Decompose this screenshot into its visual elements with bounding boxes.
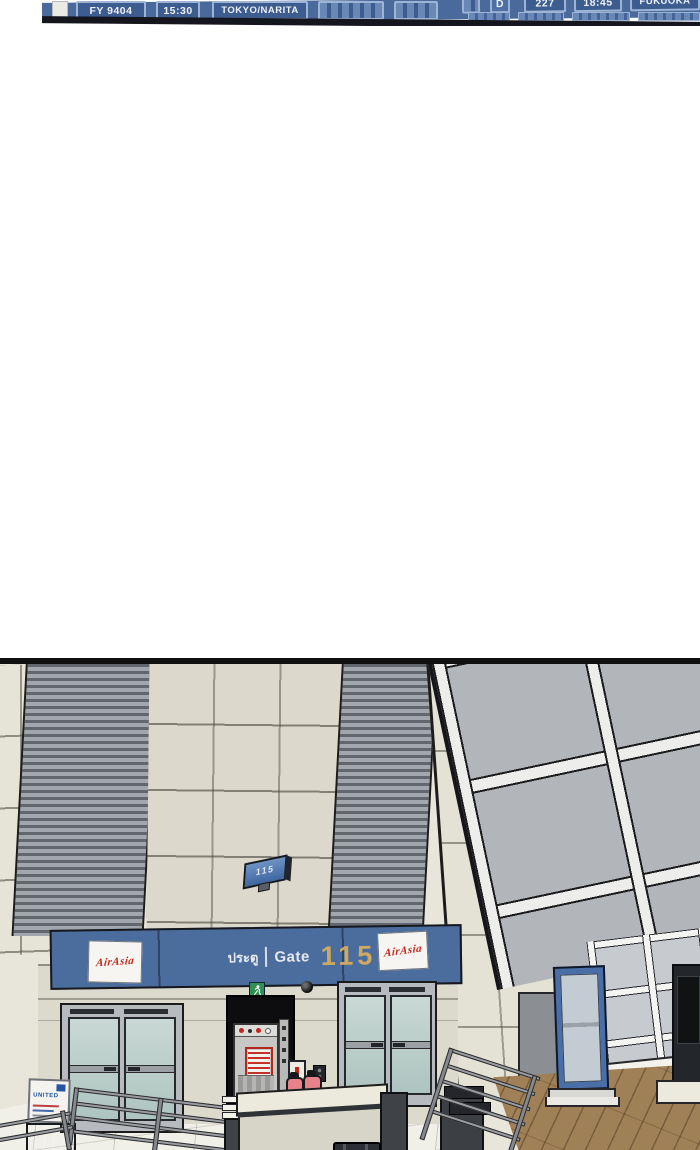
door-closer — [345, 987, 381, 992]
airasia-logo: AirAsia — [384, 942, 422, 959]
gate-scene-panel: 115 AirAsia ประตู Gate 115 AirAsia — [0, 658, 700, 1150]
door-glass-pane — [390, 995, 432, 1095]
monitor-screen — [677, 976, 700, 1044]
ribbed-panel-left — [12, 660, 158, 936]
door-handle — [128, 1067, 140, 1071]
railing-bar — [428, 1108, 521, 1141]
counter-pedestal-right — [380, 1092, 408, 1150]
door-handle — [371, 1043, 383, 1047]
indicator-light-icon — [265, 1028, 271, 1034]
flight-board-strip: FY 9404 15:30 TOKYO/NARITA D 227 18:45 F… — [0, 0, 700, 26]
security-camera-icon — [301, 981, 313, 993]
board-cell-empty — [572, 12, 630, 21]
gate-label-thai: ประตู — [228, 946, 259, 967]
board-cell-empty — [318, 1, 384, 20]
indicator-light-icon — [256, 1028, 261, 1033]
united-sign-brand: UNITED — [33, 1092, 59, 1099]
railing-bar — [0, 1125, 73, 1143]
comic-page: FY 9404 15:30 TOKYO/NARITA D 227 18:45 F… — [0, 0, 700, 1150]
door-closer — [70, 1009, 114, 1014]
board-cell-flight: 227 — [524, 0, 566, 13]
gate-label-english: Gate — [274, 948, 310, 965]
floor-case — [333, 1142, 381, 1150]
gate-banner: AirAsia ประตู Gate 115 AirAsia — [50, 924, 463, 990]
board-cell-destination: FUKUOKA — [630, 0, 700, 11]
gate-number: 115 — [321, 940, 377, 972]
divider-bar — [265, 947, 267, 967]
door-handle — [104, 1067, 116, 1071]
button-icon — [282, 1048, 286, 1052]
railing-bar — [438, 1078, 531, 1111]
sign-text-line — [33, 1104, 59, 1107]
button-icon — [282, 1026, 286, 1030]
display-stand-glass — [560, 973, 602, 1082]
flag-icon — [56, 1084, 65, 1091]
door-closer — [124, 1009, 168, 1014]
extinguisher-handle — [307, 1070, 316, 1077]
ribbed-panel-right — [328, 660, 438, 932]
control-panel-lights — [235, 1025, 277, 1037]
door-midrail — [346, 1041, 384, 1049]
monitor-kiosk — [672, 964, 700, 1088]
extinguisher-handle — [290, 1072, 299, 1079]
display-stand-step — [545, 1097, 620, 1107]
indicator-light-icon — [248, 1029, 252, 1033]
door-closer — [389, 987, 425, 992]
button-icon — [282, 1059, 286, 1063]
indicator-light-icon — [239, 1028, 244, 1033]
door-glass-pane — [344, 995, 386, 1095]
airasia-logo-box-left: AirAsia — [88, 940, 143, 983]
door-midrail — [126, 1065, 174, 1073]
door-handle — [393, 1043, 405, 1047]
tile-wall-center — [147, 659, 350, 939]
board-cell-time: 18:45 — [574, 0, 622, 12]
door-midrail — [392, 1041, 430, 1049]
monitor-pedestal — [656, 1080, 700, 1104]
board-cell-empty — [394, 1, 438, 20]
railing-bar — [433, 1093, 526, 1126]
board-cell-empty — [638, 12, 700, 21]
control-panel — [233, 1023, 279, 1101]
airasia-logo-box-right: AirAsia — [377, 931, 429, 971]
utility-alcove — [226, 995, 295, 1105]
airasia-logo: AirAsia — [95, 955, 135, 970]
blue-display-stand — [553, 965, 609, 1091]
door-midrail — [70, 1065, 118, 1073]
button-icon — [282, 1037, 286, 1041]
